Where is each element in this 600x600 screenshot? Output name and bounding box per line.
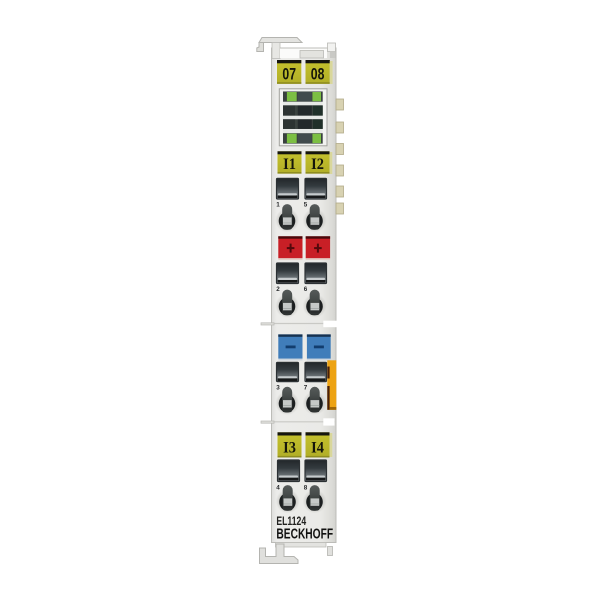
svg-text:7: 7	[304, 385, 308, 392]
svg-text:6: 6	[304, 286, 308, 293]
svg-text:I1: I1	[283, 155, 296, 173]
svg-text:07: 07	[282, 66, 296, 84]
svg-text:5: 5	[304, 202, 308, 209]
svg-text:8: 8	[304, 485, 308, 492]
svg-text:1: 1	[276, 202, 280, 209]
svg-text:BECKHOFF: BECKHOFF	[276, 525, 333, 542]
svg-text:4: 4	[276, 485, 280, 492]
svg-text:I2: I2	[311, 155, 324, 173]
svg-text:08: 08	[311, 66, 325, 84]
svg-text:3: 3	[276, 385, 280, 392]
svg-text:I3: I3	[283, 439, 296, 457]
svg-text:I4: I4	[311, 439, 324, 457]
svg-text:2: 2	[276, 286, 280, 293]
